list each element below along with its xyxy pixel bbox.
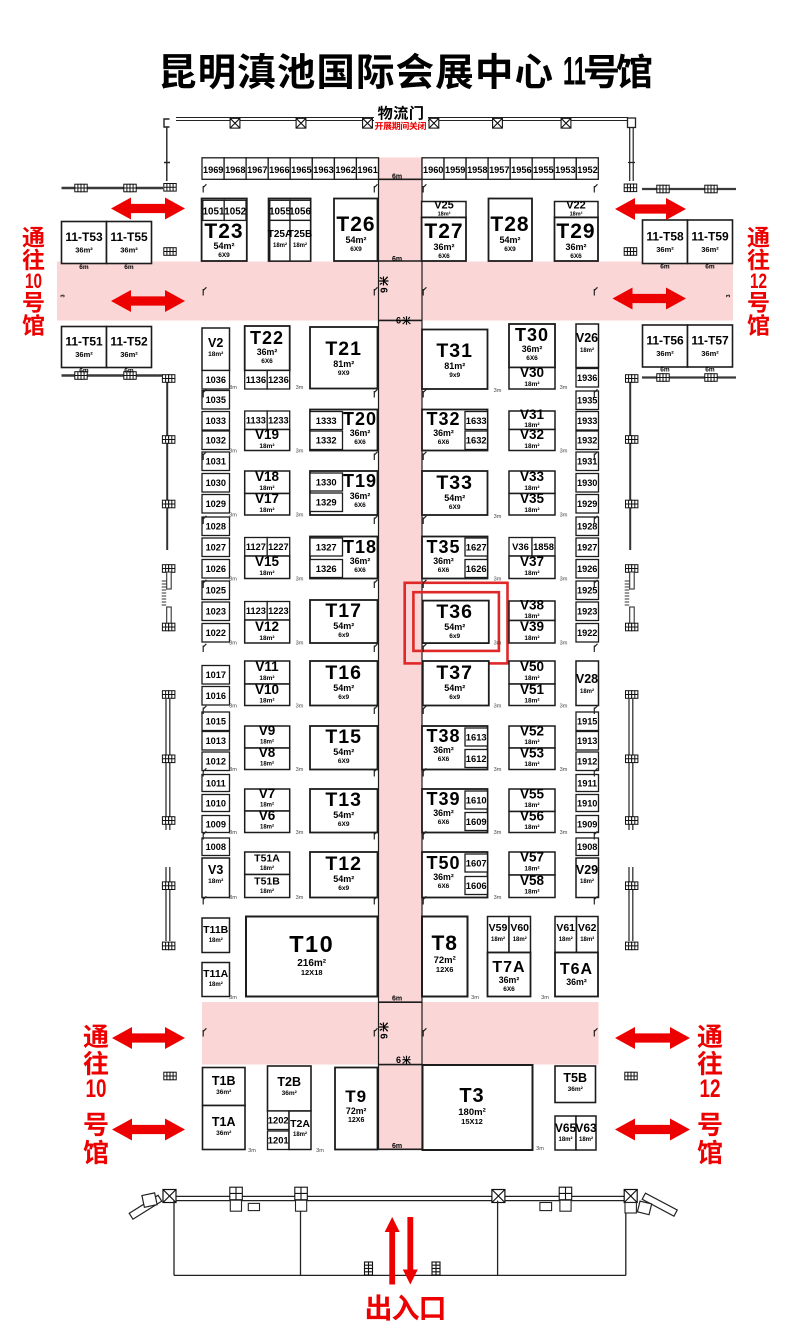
- svg-text:6m: 6m: [124, 368, 134, 375]
- svg-text:1022: 1022: [206, 628, 226, 638]
- svg-text:18m²: 18m²: [513, 936, 527, 943]
- svg-text:1912: 1912: [577, 757, 597, 767]
- svg-text:36m²: 36m²: [499, 975, 520, 985]
- svg-text:18m²: 18m²: [580, 936, 594, 943]
- svg-text:V19: V19: [255, 427, 279, 442]
- svg-text:1915: 1915: [577, 717, 597, 727]
- svg-text:36m²: 36m²: [120, 350, 138, 359]
- svg-text:11-T59: 11-T59: [691, 230, 729, 244]
- svg-text:1036: 1036: [206, 375, 226, 385]
- svg-text:18m²: 18m²: [260, 761, 274, 768]
- svg-text:3: 3: [726, 294, 732, 297]
- svg-text:3m: 3m: [560, 704, 568, 710]
- svg-text:V12: V12: [255, 619, 279, 634]
- svg-text:1930: 1930: [577, 478, 597, 488]
- svg-text:V51: V51: [520, 682, 545, 697]
- svg-text:9X9: 9X9: [338, 370, 350, 377]
- svg-text:18m²: 18m²: [524, 889, 540, 896]
- svg-text:T9: T9: [345, 1087, 367, 1106]
- svg-text:1968: 1968: [225, 165, 245, 175]
- svg-text:1025: 1025: [206, 586, 226, 596]
- svg-text:T28: T28: [490, 213, 529, 236]
- svg-text:T19: T19: [343, 471, 377, 491]
- svg-text:18m²: 18m²: [260, 824, 274, 831]
- svg-text:10: 10: [25, 270, 42, 293]
- svg-text:36m²: 36m²: [701, 245, 719, 254]
- svg-text:V6: V6: [259, 808, 276, 823]
- svg-text:3m: 3m: [494, 388, 502, 394]
- svg-text:T50: T50: [426, 853, 460, 873]
- svg-text:3m: 3m: [494, 641, 502, 647]
- svg-text:1329: 1329: [316, 497, 337, 508]
- svg-text:V25: V25: [434, 200, 454, 212]
- svg-text:18m²: 18m²: [524, 443, 540, 450]
- svg-text:6X9: 6X9: [504, 246, 516, 253]
- svg-text:1957: 1957: [489, 165, 509, 175]
- svg-text:54m²: 54m²: [333, 747, 354, 757]
- svg-text:3m: 3m: [229, 995, 237, 1001]
- svg-text:6m: 6m: [392, 256, 402, 263]
- svg-text:1955: 1955: [533, 165, 553, 175]
- svg-text:36m²: 36m²: [566, 977, 587, 987]
- svg-text:36m²: 36m²: [350, 491, 371, 501]
- svg-text:54m²: 54m²: [213, 241, 234, 251]
- svg-text:36m²: 36m²: [701, 349, 719, 358]
- svg-text:6: 6: [396, 316, 401, 326]
- svg-text:T17: T17: [325, 600, 362, 622]
- svg-text:V38: V38: [520, 598, 545, 613]
- svg-text:1029: 1029: [206, 499, 226, 509]
- svg-text:18m²: 18m²: [580, 878, 594, 885]
- svg-text:3m: 3m: [229, 385, 237, 391]
- svg-text:6m: 6m: [392, 174, 402, 181]
- svg-text:3m: 3m: [494, 830, 502, 836]
- svg-text:V7: V7: [259, 786, 276, 801]
- svg-text:T33: T33: [436, 472, 473, 494]
- svg-text:3m: 3m: [494, 895, 502, 901]
- svg-text:V2: V2: [208, 336, 223, 350]
- svg-text:V37: V37: [520, 554, 544, 569]
- svg-text:3m: 3m: [229, 767, 237, 773]
- svg-text:9: 9: [380, 1033, 391, 1039]
- svg-text:3m: 3m: [494, 577, 502, 583]
- svg-text:1927: 1927: [577, 543, 597, 553]
- svg-text:T31: T31: [436, 340, 473, 362]
- svg-text:6x9: 6x9: [338, 885, 349, 892]
- svg-text:1015: 1015: [206, 717, 226, 727]
- svg-text:3m: 3m: [560, 577, 568, 583]
- svg-text:1965: 1965: [291, 165, 311, 175]
- svg-text:1201: 1201: [268, 1135, 289, 1146]
- svg-text:T13: T13: [325, 789, 362, 811]
- svg-text:3m: 3m: [296, 385, 304, 391]
- svg-text:1632: 1632: [466, 435, 487, 446]
- svg-text:18m²: 18m²: [273, 242, 287, 249]
- svg-text:1026: 1026: [206, 564, 226, 574]
- svg-text:1612: 1612: [466, 753, 487, 764]
- svg-text:6m: 6m: [660, 367, 670, 374]
- svg-text:1607: 1607: [466, 857, 487, 868]
- svg-text:9: 9: [380, 287, 391, 293]
- svg-text:36m²: 36m²: [433, 808, 454, 818]
- svg-text:1035: 1035: [206, 395, 226, 405]
- svg-text:1960: 1960: [423, 165, 443, 175]
- svg-text:18m²: 18m²: [580, 347, 594, 354]
- svg-text:T39: T39: [426, 789, 460, 809]
- svg-text:V58: V58: [520, 873, 545, 888]
- svg-text:36m²: 36m²: [433, 428, 454, 438]
- svg-text:18m²: 18m²: [260, 865, 274, 872]
- svg-text:18m²: 18m²: [524, 761, 540, 768]
- svg-text:6m: 6m: [705, 264, 715, 271]
- svg-text:1133: 1133: [246, 416, 266, 426]
- svg-text:1613: 1613: [466, 731, 487, 742]
- svg-text:1326: 1326: [316, 563, 337, 574]
- svg-text:36m²: 36m²: [433, 745, 454, 755]
- svg-text:1969: 1969: [203, 165, 223, 175]
- svg-text:6X6: 6X6: [438, 567, 450, 574]
- svg-text:T2A: T2A: [290, 1118, 310, 1130]
- svg-text:18m²: 18m²: [293, 242, 307, 249]
- svg-text:36m²: 36m²: [216, 1130, 232, 1137]
- svg-text:6x9: 6x9: [449, 633, 460, 640]
- svg-text:6X6: 6X6: [526, 355, 538, 362]
- svg-text:T15: T15: [325, 726, 362, 748]
- svg-text:V62: V62: [578, 922, 597, 934]
- svg-text:6X9: 6X9: [350, 246, 362, 253]
- svg-text:54m²: 54m²: [444, 622, 465, 632]
- svg-text:3m: 3m: [229, 830, 237, 836]
- svg-text:V53: V53: [520, 746, 545, 761]
- svg-text:3m: 3m: [229, 704, 237, 710]
- svg-text:V59: V59: [489, 922, 508, 934]
- svg-text:6X6: 6X6: [354, 439, 366, 446]
- svg-text:1010: 1010: [206, 798, 226, 808]
- svg-text:54m²: 54m²: [499, 235, 520, 245]
- svg-text:1033: 1033: [206, 416, 226, 426]
- svg-text:1056: 1056: [289, 206, 311, 217]
- svg-text:1967: 1967: [247, 165, 267, 175]
- svg-text:6m: 6m: [79, 368, 89, 375]
- svg-text:6x9: 6x9: [338, 632, 349, 639]
- svg-text:1013: 1013: [206, 736, 226, 746]
- svg-text:18m²: 18m²: [524, 507, 540, 514]
- svg-text:1963: 1963: [313, 165, 333, 175]
- svg-text:18m²: 18m²: [259, 570, 275, 577]
- svg-text:V33: V33: [520, 469, 545, 484]
- svg-text:1332: 1332: [316, 435, 337, 446]
- svg-text:6m: 6m: [79, 264, 89, 271]
- svg-text:1929: 1929: [577, 499, 597, 509]
- svg-text:V28: V28: [576, 672, 598, 686]
- svg-text:3m: 3m: [296, 577, 304, 583]
- svg-text:18m²: 18m²: [524, 635, 540, 642]
- svg-text:1858: 1858: [533, 541, 554, 552]
- svg-text:V52: V52: [520, 724, 544, 739]
- svg-text:9x9: 9x9: [449, 372, 460, 379]
- svg-text:1956: 1956: [511, 165, 531, 175]
- svg-text:3m: 3m: [560, 767, 568, 773]
- svg-text:1609: 1609: [466, 816, 487, 827]
- svg-text:18m²: 18m²: [524, 698, 540, 705]
- svg-text:11: 11: [563, 50, 586, 94]
- svg-text:T27: T27: [424, 220, 463, 243]
- svg-text:T38: T38: [426, 726, 460, 746]
- svg-text:1023: 1023: [206, 607, 226, 617]
- svg-text:3m: 3m: [296, 641, 304, 647]
- svg-text:1926: 1926: [577, 564, 597, 574]
- svg-text:1962: 1962: [335, 165, 355, 175]
- svg-text:18m²: 18m²: [558, 1136, 572, 1143]
- svg-text:12X6: 12X6: [348, 1117, 364, 1124]
- svg-text:V10: V10: [255, 682, 279, 697]
- svg-text:1016: 1016: [206, 691, 226, 701]
- svg-text:3m: 3m: [296, 895, 304, 901]
- svg-text:6X9: 6X9: [449, 504, 461, 511]
- svg-text:11-T57: 11-T57: [691, 334, 729, 348]
- svg-text:1008: 1008: [206, 842, 226, 852]
- svg-text:18m²: 18m²: [524, 675, 540, 682]
- svg-text:T11A: T11A: [203, 968, 229, 980]
- svg-text:1009: 1009: [206, 819, 226, 829]
- svg-text:T10: T10: [289, 931, 334, 957]
- svg-text:11-T53: 11-T53: [65, 230, 103, 244]
- svg-text:81m²: 81m²: [444, 361, 465, 371]
- svg-text:54m²: 54m²: [333, 683, 354, 693]
- svg-text:11-T52: 11-T52: [110, 335, 148, 349]
- svg-text:3m: 3m: [296, 513, 304, 519]
- svg-text:36m²: 36m²: [350, 428, 371, 438]
- svg-text:36m²: 36m²: [656, 349, 674, 358]
- svg-text:3m: 3m: [296, 767, 304, 773]
- svg-text:36m²: 36m²: [433, 872, 454, 882]
- svg-text:1932: 1932: [577, 436, 597, 446]
- svg-text:36m²: 36m²: [282, 1090, 298, 1097]
- svg-text:1055: 1055: [269, 206, 291, 217]
- svg-text:T25B: T25B: [288, 229, 312, 240]
- svg-text:3m: 3m: [296, 704, 304, 710]
- svg-text:36m²: 36m²: [216, 1089, 232, 1096]
- svg-text:3m: 3m: [471, 995, 479, 1001]
- svg-text:T6A: T6A: [560, 961, 593, 978]
- svg-text:81m²: 81m²: [333, 359, 354, 369]
- svg-text:V56: V56: [520, 809, 545, 824]
- svg-text:18m²: 18m²: [209, 981, 223, 988]
- svg-text:1330: 1330: [316, 476, 337, 487]
- svg-text:1017: 1017: [206, 670, 226, 680]
- svg-text:1966: 1966: [269, 165, 289, 175]
- svg-text:6X9: 6X9: [218, 252, 230, 259]
- svg-text:54m²: 54m²: [444, 493, 465, 503]
- svg-text:1028: 1028: [206, 522, 226, 532]
- svg-text:6: 6: [396, 1055, 401, 1065]
- svg-text:6X9: 6X9: [338, 758, 350, 765]
- svg-text:15X12: 15X12: [461, 1117, 483, 1126]
- svg-text:6X6: 6X6: [261, 358, 273, 365]
- svg-text:36m²: 36m²: [433, 556, 454, 566]
- svg-text:3m: 3m: [560, 513, 568, 519]
- svg-text:V57: V57: [520, 850, 544, 865]
- svg-text:1633: 1633: [466, 415, 487, 426]
- svg-text:V50: V50: [520, 659, 544, 674]
- svg-text:6x9: 6x9: [449, 694, 460, 701]
- svg-text:1933: 1933: [577, 416, 597, 426]
- svg-text:18m²: 18m²: [524, 570, 540, 577]
- svg-text:1959: 1959: [445, 165, 465, 175]
- svg-text:36m²: 36m²: [257, 347, 278, 357]
- svg-text:18m²: 18m²: [260, 888, 274, 895]
- svg-text:1052: 1052: [224, 206, 246, 217]
- svg-text:T23: T23: [204, 220, 243, 243]
- svg-text:6m: 6m: [392, 1143, 402, 1150]
- svg-text:36m²: 36m²: [656, 245, 674, 254]
- svg-text:18m²: 18m²: [580, 688, 594, 695]
- svg-text:T16: T16: [325, 662, 362, 684]
- svg-text:3m: 3m: [229, 449, 237, 455]
- svg-text:1627: 1627: [466, 541, 487, 552]
- svg-text:3m: 3m: [229, 641, 237, 647]
- svg-text:11-T58: 11-T58: [646, 230, 684, 244]
- svg-text:3m: 3m: [296, 449, 304, 455]
- svg-text:11-T51: 11-T51: [65, 335, 103, 349]
- svg-text:54m²: 54m²: [333, 874, 354, 884]
- svg-text:36m²: 36m²: [350, 556, 371, 566]
- svg-text:3m: 3m: [229, 895, 237, 901]
- svg-text:1923: 1923: [577, 607, 597, 617]
- svg-text:54m²: 54m²: [345, 235, 366, 245]
- svg-text:V63: V63: [575, 1121, 597, 1135]
- svg-text:6X6: 6X6: [354, 502, 366, 509]
- svg-text:1227: 1227: [268, 542, 288, 552]
- svg-text:T22: T22: [250, 328, 284, 348]
- svg-text:T2B: T2B: [277, 1075, 301, 1089]
- svg-text:3m: 3m: [494, 767, 502, 773]
- svg-text:18m²: 18m²: [438, 211, 451, 218]
- svg-text:T20: T20: [343, 409, 377, 429]
- svg-text:36m²: 36m²: [522, 344, 543, 354]
- svg-text:6X6: 6X6: [354, 567, 366, 574]
- svg-text:V18: V18: [255, 469, 280, 484]
- svg-text:18m²: 18m²: [259, 675, 275, 682]
- svg-text:V8: V8: [259, 745, 276, 760]
- svg-text:T32: T32: [426, 409, 460, 429]
- svg-text:T8: T8: [431, 932, 458, 955]
- svg-text:12: 12: [700, 1075, 721, 1103]
- svg-text:72m²: 72m²: [346, 1106, 367, 1116]
- svg-text:3m: 3m: [560, 830, 568, 836]
- svg-text:6X6: 6X6: [503, 986, 515, 993]
- svg-text:6X9: 6X9: [338, 821, 350, 828]
- svg-text:18m²: 18m²: [208, 351, 224, 358]
- svg-text:3m: 3m: [248, 1148, 256, 1154]
- svg-text:T1A: T1A: [212, 1115, 236, 1129]
- svg-text:36m²: 36m²: [565, 242, 586, 252]
- svg-text:1011: 1011: [206, 778, 226, 788]
- svg-text:1202: 1202: [268, 1115, 289, 1126]
- svg-text:1953: 1953: [555, 165, 575, 175]
- svg-text:6X6: 6X6: [438, 819, 450, 826]
- svg-text:1333: 1333: [316, 415, 337, 426]
- svg-text:1911: 1911: [577, 778, 597, 788]
- svg-text:T51B: T51B: [254, 876, 280, 888]
- svg-text:18m²: 18m²: [259, 507, 275, 514]
- svg-text:1127: 1127: [246, 542, 266, 552]
- svg-text:6X6: 6X6: [438, 756, 450, 763]
- svg-text:6X6: 6X6: [570, 253, 582, 260]
- svg-text:T37: T37: [436, 662, 473, 684]
- svg-text:12X18: 12X18: [301, 968, 323, 977]
- svg-text:T5B: T5B: [563, 1071, 587, 1085]
- svg-text:6X6: 6X6: [438, 883, 450, 890]
- svg-text:11-T56: 11-T56: [646, 334, 684, 348]
- svg-text:18m²: 18m²: [524, 866, 540, 873]
- svg-text:T26: T26: [336, 213, 375, 236]
- svg-text:V17: V17: [255, 491, 279, 506]
- svg-text:V3: V3: [208, 863, 223, 877]
- svg-text:6m: 6m: [705, 367, 715, 374]
- svg-text:V11: V11: [255, 659, 279, 674]
- svg-text:3m: 3m: [560, 385, 568, 391]
- svg-text:1952: 1952: [577, 165, 597, 175]
- svg-text:T18: T18: [343, 537, 377, 557]
- svg-text:T21: T21: [325, 338, 362, 360]
- svg-text:T1B: T1B: [212, 1074, 236, 1088]
- svg-text:3m: 3m: [494, 704, 502, 710]
- svg-text:V60: V60: [510, 922, 529, 934]
- svg-text:1123: 1123: [246, 606, 266, 616]
- svg-text:1027: 1027: [206, 543, 226, 553]
- svg-text:V15: V15: [255, 554, 280, 569]
- svg-text:6m: 6m: [392, 996, 402, 1003]
- svg-text:V9: V9: [259, 723, 276, 738]
- svg-text:3m: 3m: [494, 514, 502, 520]
- svg-text:T29: T29: [556, 220, 595, 243]
- svg-text:1327: 1327: [316, 541, 337, 552]
- svg-text:1910: 1910: [577, 798, 597, 808]
- svg-text:18m²: 18m²: [570, 211, 583, 218]
- svg-text:V35: V35: [520, 491, 545, 506]
- svg-text:V36: V36: [512, 541, 529, 552]
- svg-text:3m: 3m: [316, 1148, 324, 1154]
- svg-text:1936: 1936: [577, 373, 597, 383]
- svg-text:1223: 1223: [268, 606, 288, 616]
- svg-text:V29: V29: [576, 863, 598, 877]
- svg-text:3m: 3m: [541, 995, 549, 1001]
- svg-text:T11B: T11B: [203, 924, 229, 936]
- svg-text:18m²: 18m²: [209, 937, 223, 944]
- svg-text:1136: 1136: [246, 374, 266, 385]
- svg-text:3m: 3m: [296, 830, 304, 836]
- svg-text:1032: 1032: [206, 436, 226, 446]
- svg-text:3m: 3m: [536, 1146, 544, 1152]
- svg-text:V39: V39: [520, 619, 544, 634]
- svg-text:V30: V30: [520, 365, 544, 380]
- svg-text:3: 3: [61, 294, 67, 297]
- svg-text:3m: 3m: [229, 513, 237, 519]
- svg-text:18m²: 18m²: [259, 443, 275, 450]
- svg-text:1908: 1908: [577, 842, 597, 852]
- svg-text:V31: V31: [520, 407, 545, 422]
- svg-text:18m²: 18m²: [524, 381, 540, 388]
- svg-text:18m²: 18m²: [259, 635, 275, 642]
- svg-text:T51A: T51A: [254, 853, 280, 865]
- svg-text:V26: V26: [576, 331, 598, 345]
- svg-text:1051: 1051: [203, 206, 225, 217]
- svg-text:6m: 6m: [124, 264, 134, 271]
- svg-text:V55: V55: [520, 787, 545, 802]
- svg-text:6X6: 6X6: [438, 253, 450, 260]
- svg-text:T12: T12: [325, 853, 362, 875]
